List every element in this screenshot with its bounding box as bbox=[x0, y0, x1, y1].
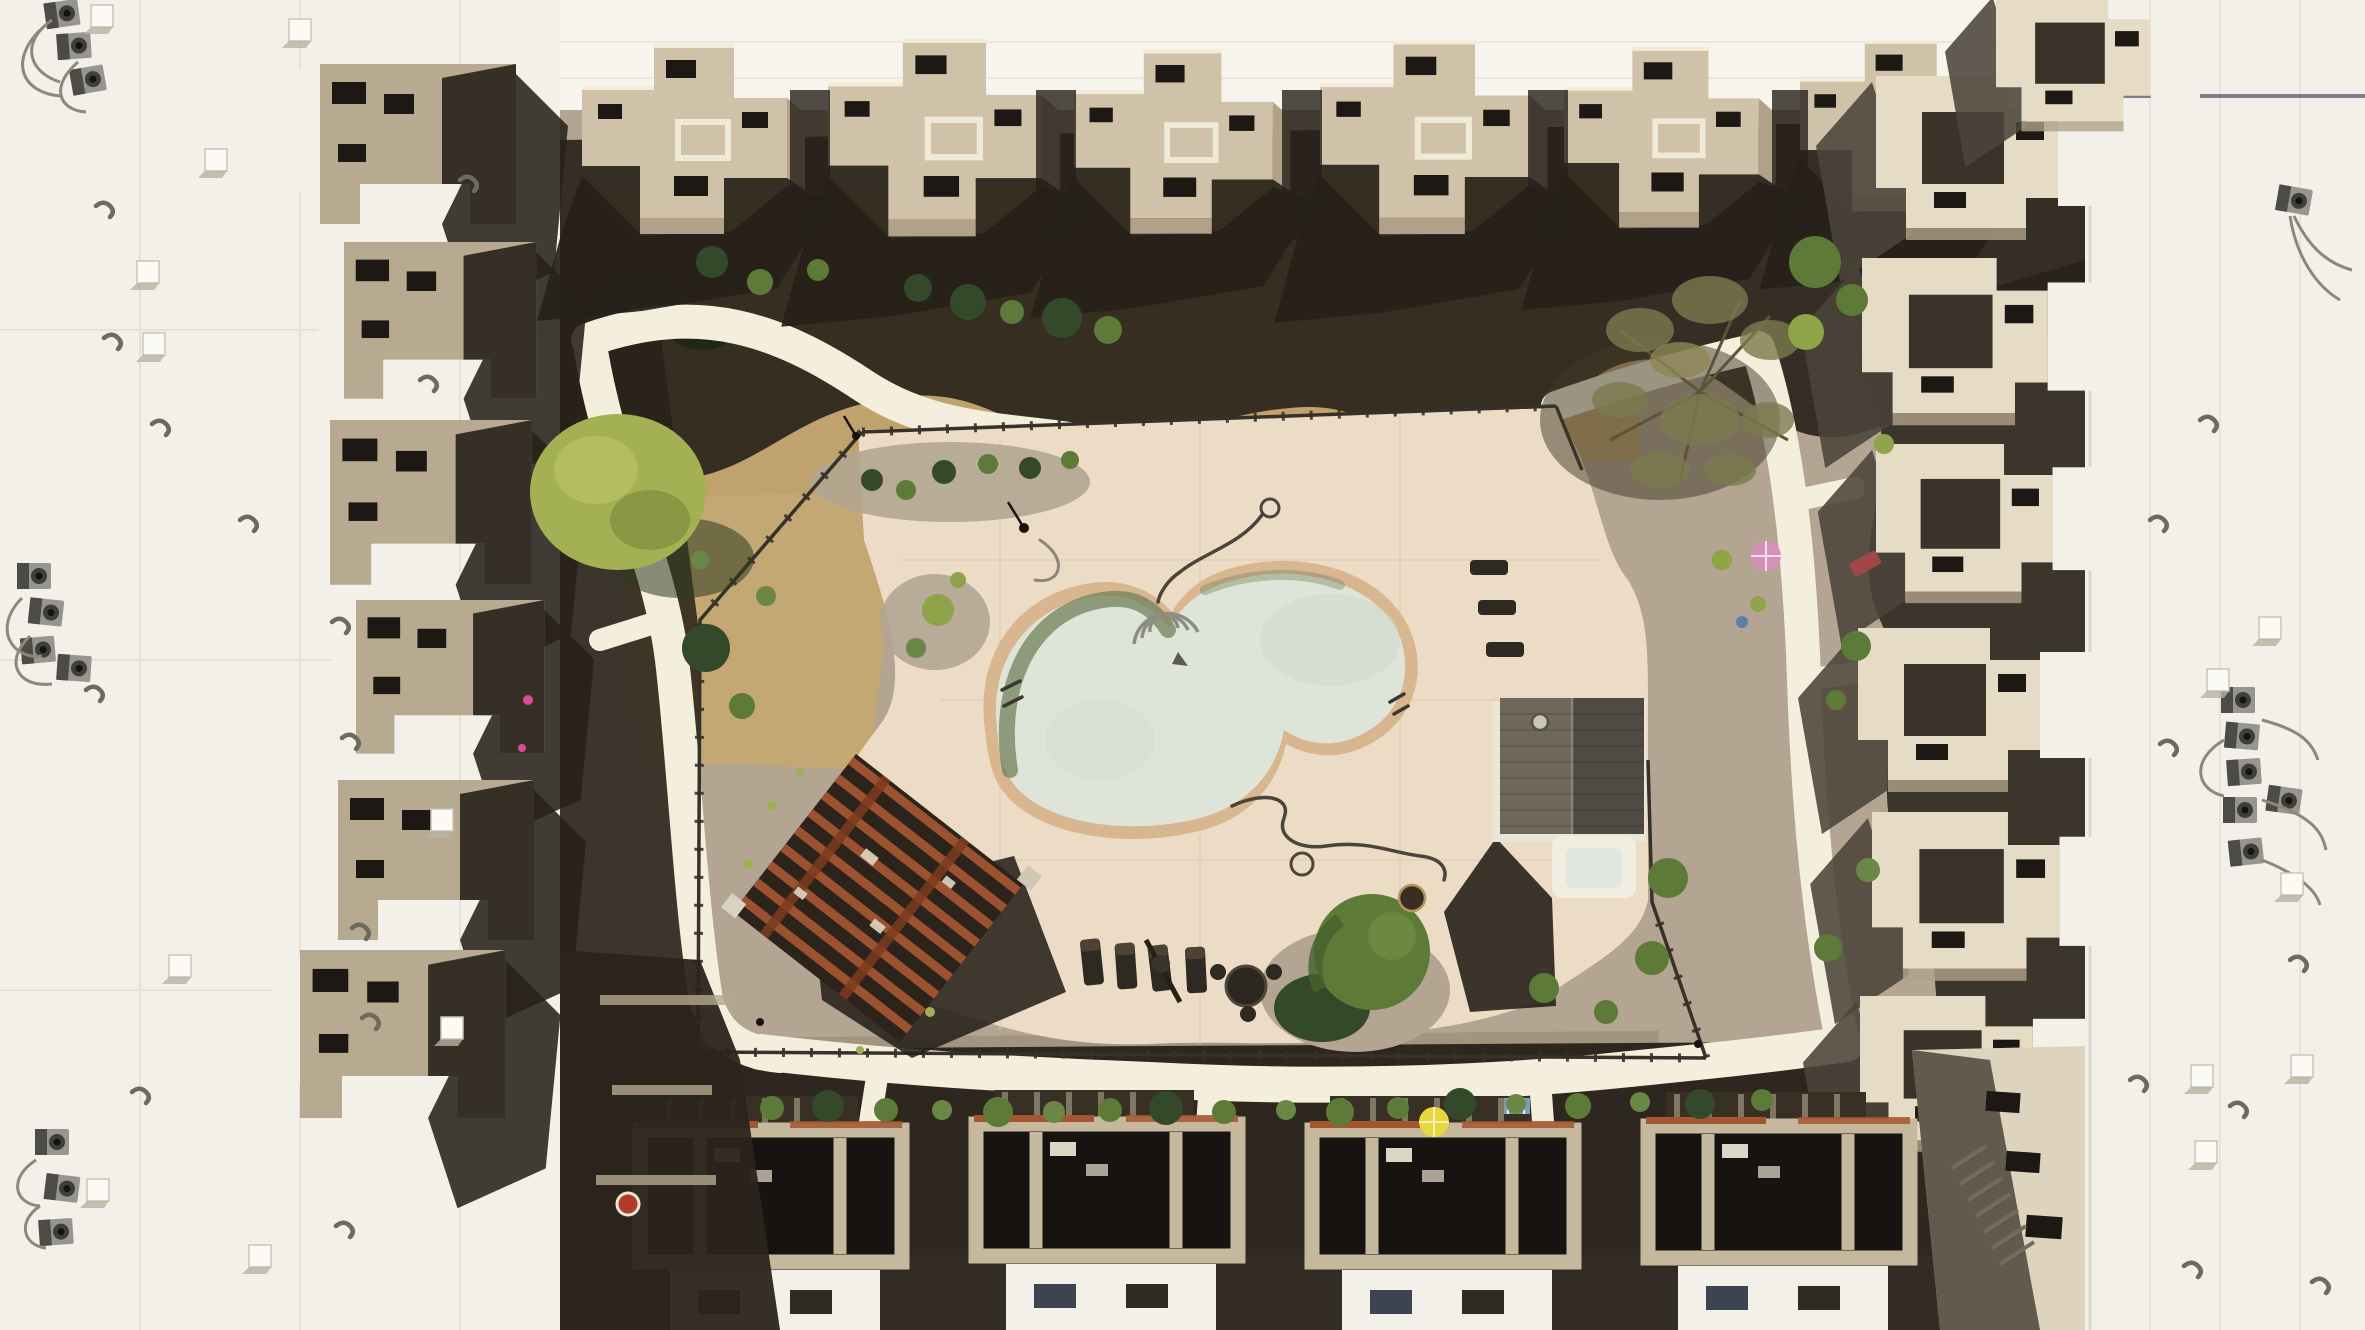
aerial-photo-canvas bbox=[0, 0, 2365, 1330]
roof-vent-cap bbox=[1532, 714, 1548, 730]
fire-pit bbox=[1399, 885, 1425, 911]
bottom-right-building bbox=[1912, 1046, 2085, 1330]
aerial-photo bbox=[0, 0, 2365, 1330]
red-patio-table bbox=[617, 1193, 639, 1215]
balcony-pink-item bbox=[523, 695, 533, 705]
